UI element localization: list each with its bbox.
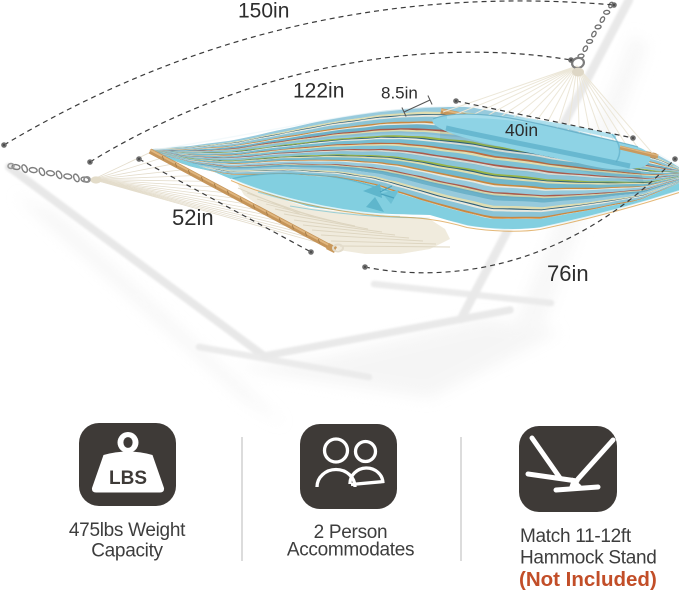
svg-text:122in: 122in [293, 80, 344, 103]
svg-text:Capacity: Capacity [91, 541, 163, 562]
svg-text:76in: 76in [547, 261, 589, 286]
svg-text:Hammock Stand: Hammock Stand [520, 548, 657, 569]
svg-text:Accommodates: Accommodates [287, 540, 414, 561]
svg-text:52in: 52in [172, 205, 214, 230]
svg-text:475lbs Weight: 475lbs Weight [69, 520, 186, 541]
svg-text:150in: 150in [238, 0, 289, 23]
svg-text:40in: 40in [505, 120, 538, 140]
svg-text:LBS: LBS [109, 468, 147, 489]
svg-text:Match 11-12ft: Match 11-12ft [520, 526, 632, 547]
svg-text:8.5in: 8.5in [381, 84, 418, 103]
svg-text:(Not Included): (Not Included) [519, 568, 657, 591]
